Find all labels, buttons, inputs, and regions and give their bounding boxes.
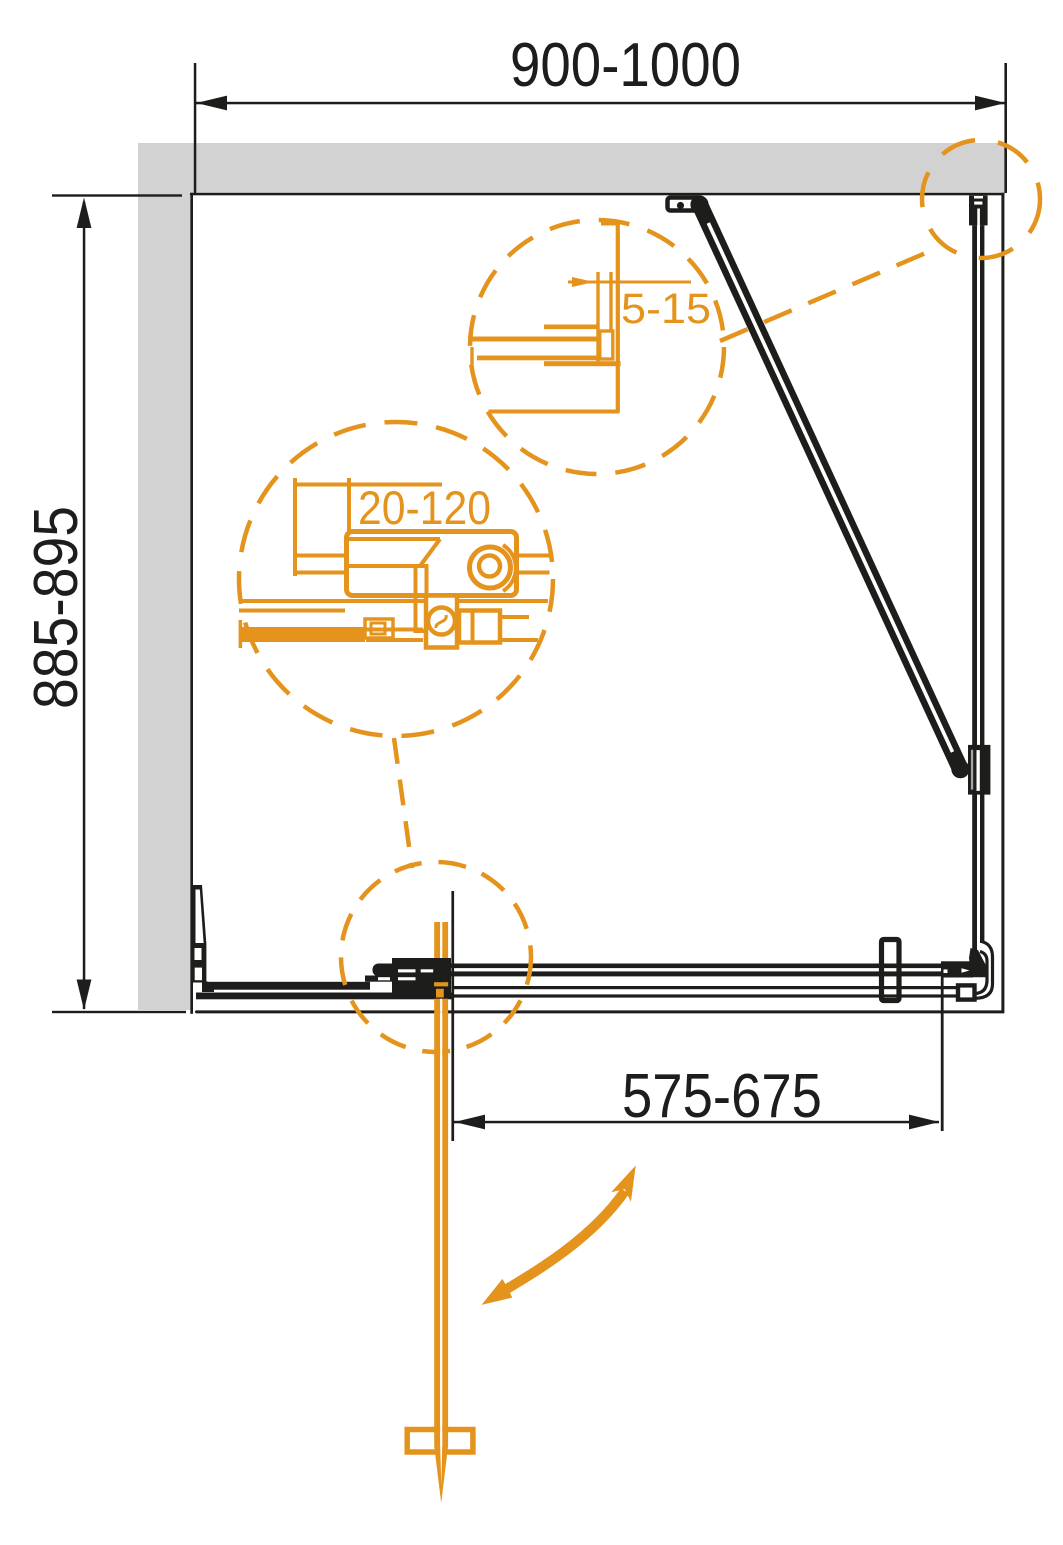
svg-text:900-1000: 900-1000 (510, 31, 741, 100)
svg-text:20-120: 20-120 (358, 481, 491, 534)
svg-text:5-15: 5-15 (621, 285, 711, 333)
svg-text:885-895: 885-895 (22, 506, 91, 709)
svg-text:575-675: 575-675 (622, 1062, 822, 1131)
